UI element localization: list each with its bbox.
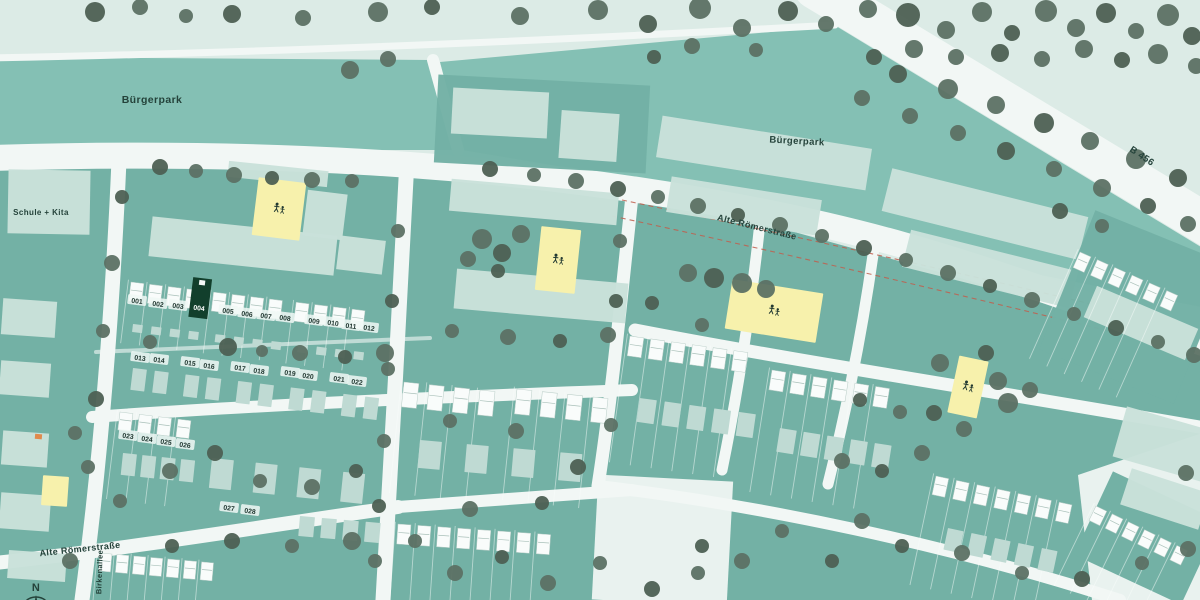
tree-icon <box>896 3 920 27</box>
tree-icon <box>1096 3 1116 23</box>
garden-footprint <box>183 374 200 398</box>
tree-icon <box>511 7 529 25</box>
house <box>157 417 172 436</box>
house <box>690 345 707 367</box>
tree-icon <box>1067 307 1081 321</box>
house <box>540 392 558 418</box>
tree-icon <box>143 335 157 349</box>
tree-icon <box>1157 4 1179 26</box>
plot-number: 006 <box>241 311 253 319</box>
tree-icon <box>775 524 789 538</box>
tree-icon <box>540 575 556 591</box>
garden-footprint <box>205 377 222 401</box>
building <box>451 88 549 139</box>
tree-icon <box>989 372 1007 390</box>
tree-icon <box>368 2 388 22</box>
house <box>810 377 827 399</box>
garden-footprint <box>169 329 180 338</box>
garden-footprint <box>686 405 706 431</box>
tree-icon <box>889 65 907 83</box>
tree-icon <box>1075 40 1093 58</box>
garden-footprint <box>736 412 756 438</box>
playground-area <box>252 177 307 240</box>
house <box>132 556 146 575</box>
tree-icon <box>998 393 1018 413</box>
tree-icon <box>349 464 363 478</box>
plot-number: 024 <box>141 436 153 444</box>
tree-icon <box>948 49 964 65</box>
plot-number: 007 <box>260 313 272 321</box>
tree-icon <box>972 2 992 22</box>
tree-icon <box>983 279 997 293</box>
garden-footprint <box>316 347 327 356</box>
tree-icon <box>609 294 623 308</box>
tree-icon <box>472 229 492 249</box>
tree-icon <box>604 418 618 432</box>
tree-icon <box>377 434 391 448</box>
tree-icon <box>495 550 509 564</box>
tree-icon <box>207 445 223 461</box>
plot-number: 008 <box>279 315 291 323</box>
plot-number: 021 <box>333 376 345 384</box>
house <box>710 348 727 370</box>
tree-icon <box>905 40 923 58</box>
tree-icon <box>96 324 110 338</box>
tree-icon <box>834 453 850 469</box>
garden-footprint <box>418 440 442 470</box>
garden-footprint <box>464 444 488 474</box>
house <box>477 390 495 416</box>
garden-footprint <box>152 371 169 395</box>
tree-icon <box>508 423 524 439</box>
tree-icon <box>997 142 1015 160</box>
tree-icon <box>223 5 241 23</box>
tree-icon <box>825 554 839 568</box>
plot-number: 015 <box>184 360 196 368</box>
tree-icon <box>1034 51 1050 67</box>
tree-icon <box>914 445 930 461</box>
building <box>302 190 347 241</box>
side-street-label: Birkenallee <box>94 550 105 595</box>
garden-footprint <box>637 398 657 424</box>
garden-footprint <box>121 453 137 476</box>
tree-icon <box>895 539 909 553</box>
plot-number: 012 <box>363 325 375 333</box>
house <box>536 534 550 555</box>
plot-number: 010 <box>327 320 339 328</box>
tree-icon <box>866 49 882 65</box>
garden-footprint <box>341 394 358 418</box>
playground-area <box>535 226 581 294</box>
building <box>336 235 386 274</box>
plot-number: 005 <box>222 308 234 316</box>
tree-icon <box>749 43 763 57</box>
tree-icon <box>778 1 798 21</box>
garden-footprint <box>130 368 147 392</box>
garden-footprint <box>140 455 156 478</box>
tree-icon <box>991 44 1009 62</box>
tree-icon <box>553 334 567 348</box>
tree-icon <box>568 173 584 189</box>
tree-icon <box>253 474 267 488</box>
garden-footprint <box>353 351 364 360</box>
garden-footprint <box>179 459 195 482</box>
tree-icon <box>535 496 549 510</box>
tree-icon <box>345 174 359 188</box>
park-label-left: Bürgerpark <box>122 94 183 106</box>
plot-number: 001 <box>131 298 143 306</box>
house <box>149 557 163 576</box>
house <box>456 528 470 549</box>
tree-icon <box>1140 198 1156 214</box>
tree-icon <box>593 556 607 570</box>
tree-icon <box>1067 19 1085 37</box>
tree-icon <box>113 494 127 508</box>
tree-icon <box>1169 169 1187 187</box>
house <box>476 530 490 551</box>
plot-number: 013 <box>134 355 146 363</box>
plot-number: 026 <box>179 442 191 450</box>
tree-icon <box>645 296 659 310</box>
tree-icon <box>304 479 320 495</box>
tree-icon <box>600 327 616 343</box>
tree-icon <box>482 161 498 177</box>
tree-icon <box>1135 556 1149 570</box>
tree-icon <box>931 354 949 372</box>
garden-footprint <box>511 448 535 478</box>
tree-icon <box>1046 161 1062 177</box>
tree-icon <box>368 554 382 568</box>
tree-icon <box>684 38 700 54</box>
tree-icon <box>679 264 697 282</box>
house <box>166 559 180 578</box>
plot-number: 023 <box>122 433 134 441</box>
tree-icon <box>937 21 955 39</box>
tree-icon <box>588 0 608 20</box>
tree-icon <box>853 393 867 407</box>
garden-footprint <box>298 516 315 537</box>
house <box>790 373 807 395</box>
house <box>514 389 532 415</box>
plot-number: 025 <box>160 439 172 447</box>
tree-icon <box>372 499 386 513</box>
plot-number: 022 <box>351 379 363 387</box>
building <box>7 169 90 234</box>
tree-icon <box>651 190 665 204</box>
entrance-marker <box>35 434 42 440</box>
tree-icon <box>690 198 706 214</box>
tree-icon <box>613 234 627 248</box>
house <box>831 380 848 402</box>
tree-icon <box>338 350 352 364</box>
house <box>452 387 470 413</box>
tree-icon <box>152 159 168 175</box>
house <box>176 419 191 438</box>
garden-footprint <box>320 518 337 539</box>
tree-icon <box>899 253 913 267</box>
tree-icon <box>1148 44 1168 64</box>
tree-icon <box>408 534 422 548</box>
garden-footprint <box>310 390 327 414</box>
garden-footprint <box>188 331 199 340</box>
house <box>769 370 786 392</box>
plot-number: 016 <box>203 363 215 371</box>
tree-icon <box>1108 320 1124 336</box>
tree-icon <box>512 225 530 243</box>
tree-icon <box>854 90 870 106</box>
building <box>0 360 51 397</box>
garden-footprint <box>364 522 381 543</box>
plot-number: 019 <box>284 370 296 378</box>
compass-north-label: N <box>32 582 40 594</box>
tree-icon <box>189 164 203 178</box>
tree-icon <box>1180 216 1196 232</box>
tree-icon <box>304 172 320 188</box>
building <box>1 298 57 338</box>
tree-icon <box>462 501 478 517</box>
house <box>590 397 608 423</box>
house <box>401 382 419 408</box>
house <box>427 385 445 411</box>
tree-icon <box>704 268 724 288</box>
tree-icon <box>81 460 95 474</box>
tree-icon <box>447 565 463 581</box>
garden-footprint <box>132 324 143 333</box>
tree-icon <box>1180 541 1196 557</box>
house <box>873 386 890 408</box>
house <box>118 412 133 431</box>
house <box>731 351 748 373</box>
tree-icon <box>179 9 193 23</box>
tree-icon <box>734 553 750 569</box>
tree-icon <box>285 539 299 553</box>
tree-icon <box>644 581 660 597</box>
garden-footprint <box>711 408 731 434</box>
tree-icon <box>926 405 942 421</box>
tree-icon <box>391 224 405 238</box>
tree-icon <box>443 414 457 428</box>
plot-number: 020 <box>302 373 314 381</box>
house <box>669 342 686 364</box>
park-area-left <box>0 57 458 150</box>
tree-icon <box>341 61 359 79</box>
tree-icon <box>500 329 516 345</box>
plot-number: 028 <box>244 508 256 516</box>
tree-icon <box>445 324 459 338</box>
tree-icon <box>733 19 751 37</box>
house <box>565 394 583 420</box>
tree-icon <box>226 167 242 183</box>
tree-icon <box>818 16 834 32</box>
tree-icon <box>1081 132 1099 150</box>
tree-icon <box>256 345 268 357</box>
site-plan-map: 0010020030040050060070080090100110120130… <box>0 0 1200 600</box>
plot-number: 018 <box>253 368 265 376</box>
tree-icon <box>295 10 311 26</box>
tree-icon <box>856 240 872 256</box>
tree-icon <box>1151 335 1165 349</box>
tree-icon <box>491 264 505 278</box>
house <box>137 414 152 433</box>
tree-icon <box>165 539 179 553</box>
house <box>627 336 644 358</box>
tree-icon <box>1034 113 1054 133</box>
building <box>558 110 619 162</box>
plot-number: 009 <box>308 318 320 326</box>
tree-icon <box>1074 571 1090 587</box>
tree-icon <box>695 539 709 553</box>
tree-icon <box>610 181 626 197</box>
tree-icon <box>527 168 541 182</box>
tree-icon <box>1093 179 1111 197</box>
tree-icon <box>859 0 877 18</box>
tree-icon <box>639 15 657 33</box>
tree-icon <box>381 362 395 376</box>
tree-icon <box>265 171 279 185</box>
tree-icon <box>1095 219 1109 233</box>
tree-icon <box>938 79 958 99</box>
tree-icon <box>224 533 240 549</box>
tree-icon <box>219 338 237 356</box>
house <box>516 532 530 553</box>
garden-footprint <box>236 381 253 405</box>
garden-footprint <box>288 387 305 411</box>
tree-icon <box>956 421 972 437</box>
plot-number: 017 <box>234 365 246 373</box>
tree-icon <box>875 464 889 478</box>
plot-number: 011 <box>345 323 357 331</box>
tree-icon <box>1015 566 1029 580</box>
tree-icon <box>343 532 361 550</box>
tree-icon <box>385 294 399 308</box>
tree-icon <box>987 96 1005 114</box>
tree-icon <box>940 265 956 281</box>
tree-icon <box>85 2 105 22</box>
house <box>437 527 451 548</box>
garden-footprint <box>363 397 380 421</box>
tree-icon <box>1128 23 1144 39</box>
tree-icon <box>460 251 476 267</box>
tree-icon <box>893 405 907 419</box>
house <box>496 531 510 552</box>
tree-icon <box>115 190 129 204</box>
garden-footprint <box>151 326 162 335</box>
house <box>200 562 214 581</box>
tree-icon <box>815 229 829 243</box>
plot-number: 004 <box>193 305 205 313</box>
tree-icon <box>292 345 308 361</box>
house <box>648 339 665 361</box>
tree-icon <box>380 51 396 67</box>
tree-icon <box>695 318 709 332</box>
plot-number: 002 <box>152 301 164 309</box>
plot-number: 014 <box>153 357 165 365</box>
tree-icon <box>493 244 511 262</box>
tree-icon <box>691 566 705 580</box>
tree-icon <box>954 545 970 561</box>
plot-number: 003 <box>172 303 184 311</box>
tree-icon <box>1022 382 1038 398</box>
tree-icon <box>757 280 775 298</box>
tree-icon <box>88 391 104 407</box>
plot-number: 027 <box>223 505 235 513</box>
garden-footprint <box>209 458 234 490</box>
tree-icon <box>732 273 752 293</box>
tree-icon <box>376 344 394 362</box>
tree-icon <box>978 345 994 361</box>
tree-icon <box>162 463 178 479</box>
tree-icon <box>854 513 870 529</box>
tree-icon <box>1035 0 1057 22</box>
tree-icon <box>570 459 586 475</box>
garden-footprint <box>257 384 274 408</box>
tree-icon <box>1024 292 1040 308</box>
tree-icon <box>1178 465 1194 481</box>
tree-icon <box>647 50 661 64</box>
tree-icon <box>1052 203 1068 219</box>
tree-icon <box>1004 25 1020 41</box>
tree-icon <box>104 255 120 271</box>
tree-icon <box>950 125 966 141</box>
playground-area <box>41 475 69 507</box>
garden-footprint <box>271 341 282 350</box>
tree-icon <box>68 426 82 440</box>
tree-icon <box>1114 52 1130 68</box>
house <box>115 554 129 573</box>
house <box>183 560 197 579</box>
tree-icon <box>902 108 918 124</box>
school-label: Schule + Kita <box>13 208 69 217</box>
garden-footprint <box>661 401 681 427</box>
